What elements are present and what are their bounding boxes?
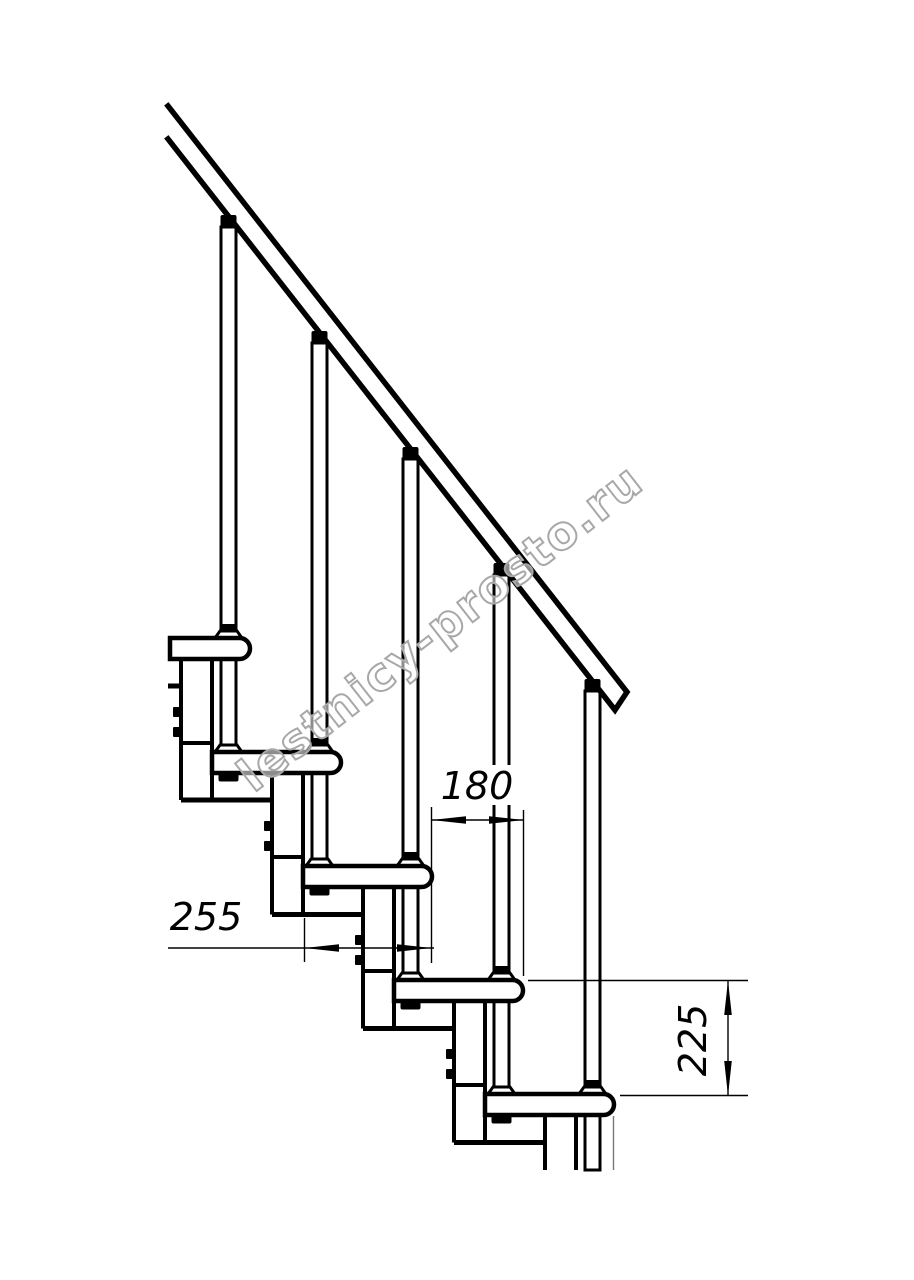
tread-4 [394,980,523,1001]
baluster-rail-cap [585,679,601,692]
dimension-value-255: 255 [170,895,243,939]
tread-1 [170,638,250,659]
bolt-icon [355,935,363,945]
arrow-up-icon [724,981,732,1016]
baluster-1 [215,215,242,782]
bolt-icon [446,1049,454,1059]
bolt-icon [355,955,363,965]
arrow-left-icon [305,944,340,952]
bolt-icon [264,841,272,851]
watermark-text: lestnicy-prosto.ru [227,453,653,802]
baluster-rail-cap [403,447,419,460]
baluster-4 [488,563,515,1124]
baluster-2 [306,331,333,896]
arrow-down-icon [724,1061,732,1096]
baluster-rail-cap [312,331,328,344]
tread-5 [485,1094,614,1115]
bolt-icon [264,821,272,831]
arrow-right-icon [489,816,524,824]
technical-drawing-page: 180 255 225 lestnicy-prosto.ru [0,0,914,1280]
tread-3 [303,866,432,887]
bolt-icon [446,1069,454,1079]
baluster-3 [397,447,424,1010]
baluster-rail-cap [221,215,237,228]
bolt-icon [173,707,181,717]
dimension-step-rise-225: 225 [528,981,748,1096]
dimension-value-180: 180 [441,764,514,808]
arrow-right-icon [397,944,432,952]
arrow-left-icon [432,816,467,824]
dimension-value-225: 225 [671,1004,715,1077]
staircase-drawing: 180 255 225 lestnicy-prosto.ru [0,0,914,1280]
stringer-module-5 [545,1115,576,1170]
bolt-icon [173,727,181,737]
